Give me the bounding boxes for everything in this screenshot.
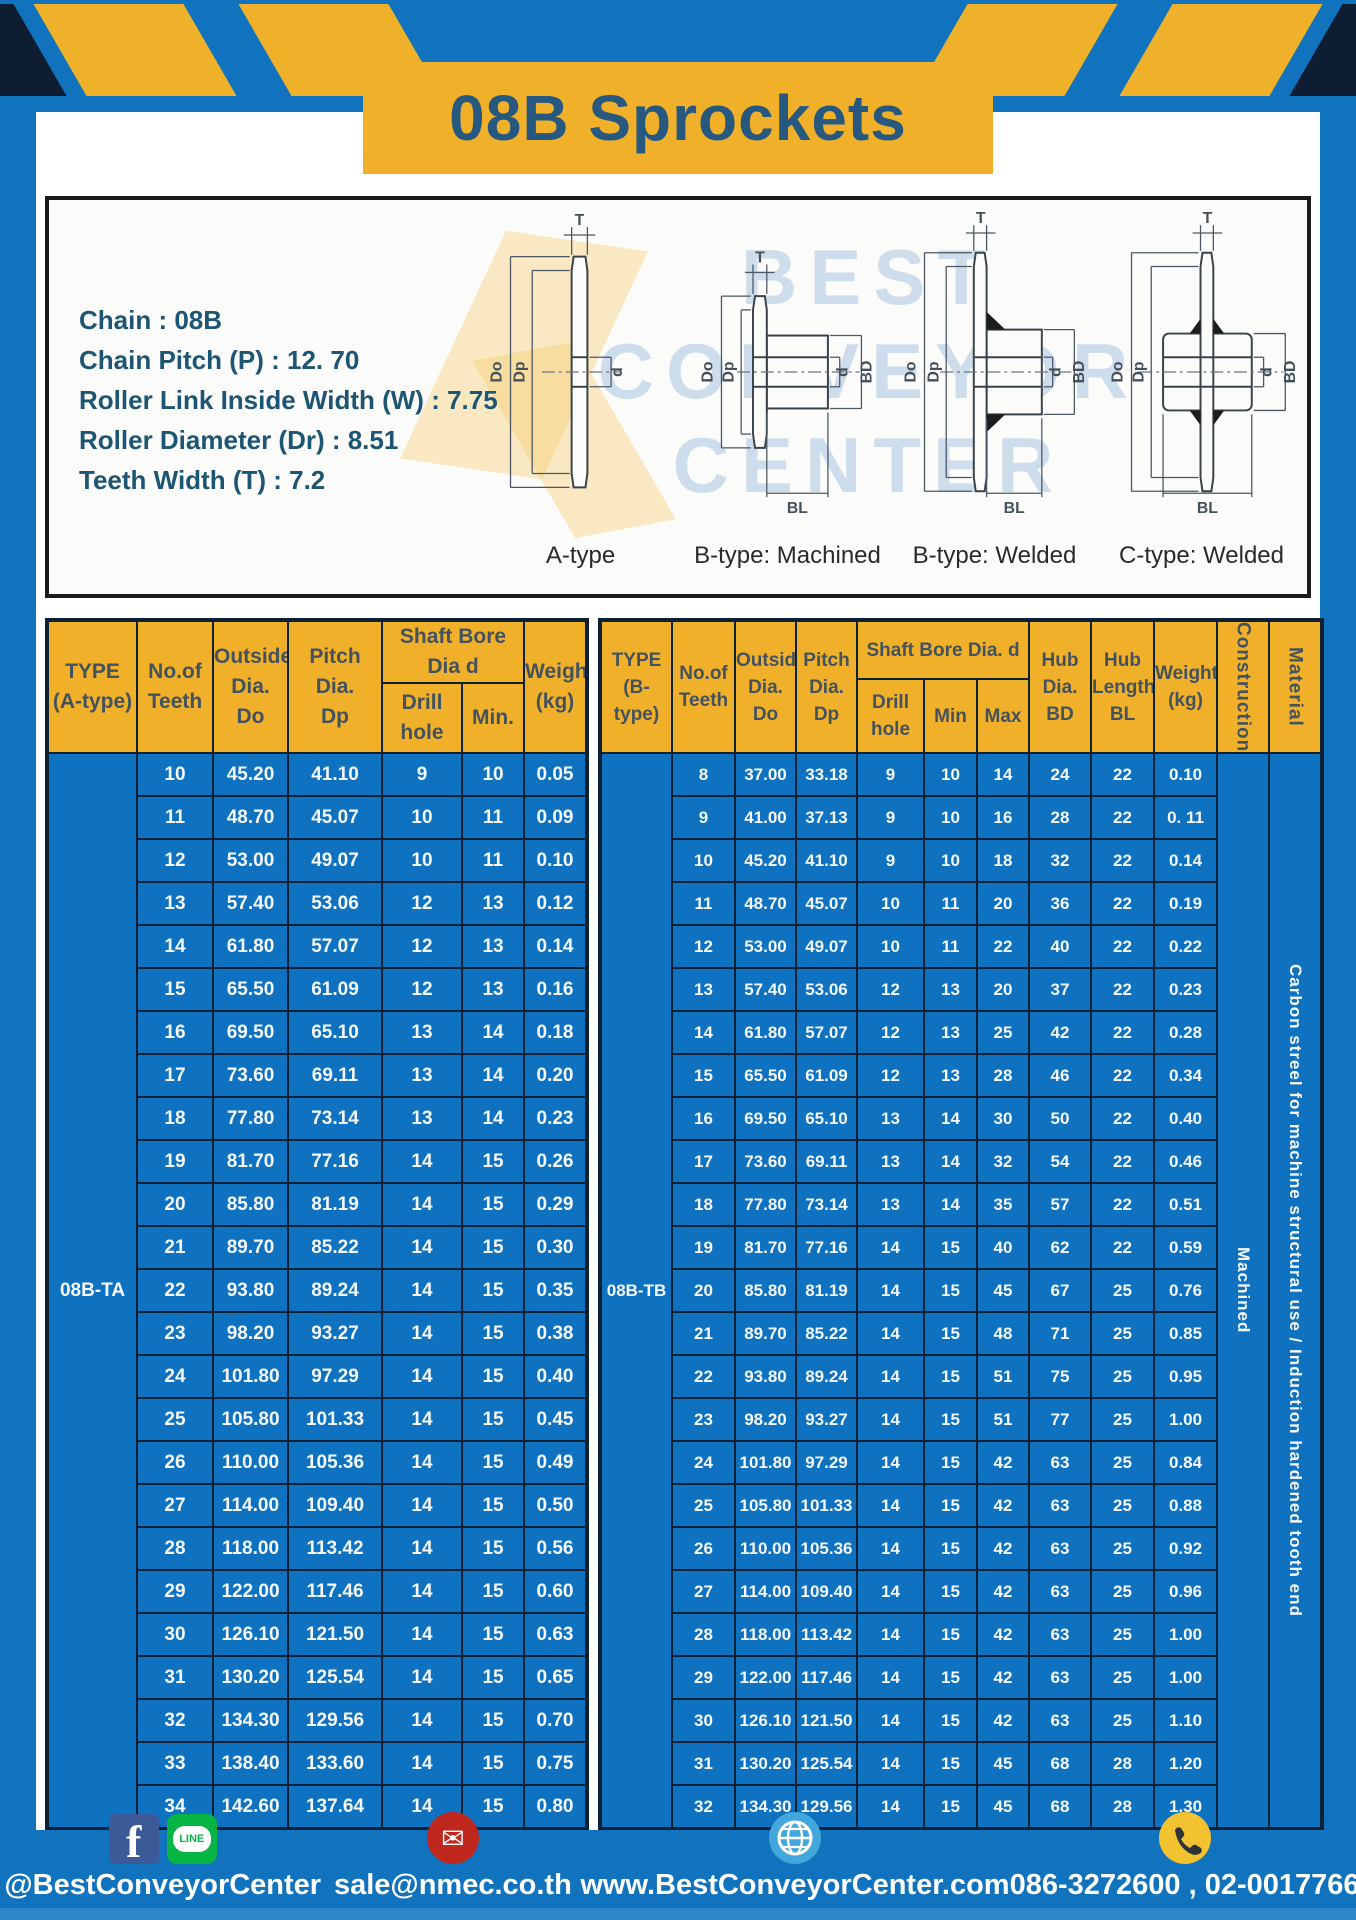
diagram-c-type-welded: T Do Dp: [1098, 206, 1305, 594]
cell: 14: [857, 1527, 924, 1570]
cell: 73.14: [288, 1097, 382, 1140]
envelope-glyph: ✉: [441, 1822, 464, 1855]
cell: 14: [137, 925, 213, 968]
hdr-line: Do: [214, 702, 287, 732]
cell: 117.46: [796, 1656, 857, 1699]
cell: 69.50: [213, 1011, 288, 1054]
cell: 13: [924, 1011, 977, 1054]
table-a-type: TYPE (A-type) No.of Teeth Outside Dia. D…: [45, 618, 589, 1831]
cell: 14: [382, 1699, 462, 1742]
data-row: 08B-TB837.0033.189101424220.10MachinedCa…: [600, 753, 1322, 796]
diagram-caption: B-type: Welded: [913, 542, 1077, 570]
cell: 29: [137, 1570, 213, 1613]
cell: 12: [382, 882, 462, 925]
svg-text:Dp: Dp: [720, 361, 737, 382]
cell: 15: [924, 1355, 977, 1398]
cell: 14: [382, 1398, 462, 1441]
cell: 37.13: [796, 796, 857, 839]
cell: 69.50: [735, 1097, 796, 1140]
cell: 113.42: [288, 1527, 382, 1570]
cell: 15: [462, 1699, 524, 1742]
cell: 42: [977, 1656, 1029, 1699]
cell: 69.11: [288, 1054, 382, 1097]
cell: 41.10: [288, 753, 382, 796]
facebook-letter: f: [126, 1820, 141, 1864]
page-title: 08B Sprockets: [449, 81, 907, 155]
cell: 81.19: [288, 1183, 382, 1226]
cell: 0.10: [524, 839, 587, 882]
cell: 22: [1091, 882, 1154, 925]
svg-text:BL: BL: [1197, 500, 1218, 517]
chain-specs: Chain : 08B Chain Pitch (P) : 12. 70 Rol…: [79, 300, 498, 500]
svg-text:Do: Do: [700, 361, 717, 382]
catalog-page: { "title": "08B Sprockets", "specs": { "…: [0, 0, 1356, 1920]
diagram-caption: A-type: [546, 542, 615, 570]
globe-icon[interactable]: [769, 1812, 821, 1864]
hdr-line: No.of: [138, 657, 212, 687]
cell: 14: [857, 1699, 924, 1742]
cell: 14: [382, 1656, 462, 1699]
cell: 15: [924, 1226, 977, 1269]
cell: 12: [382, 925, 462, 968]
cell: 48.70: [213, 796, 288, 839]
cell: 15: [137, 968, 213, 1011]
cell: 13: [924, 1054, 977, 1097]
email-address[interactable]: sale@nmec.co.th: [334, 1869, 572, 1902]
cell: 13: [382, 1011, 462, 1054]
cell: 13: [382, 1054, 462, 1097]
cell: 26: [672, 1527, 735, 1570]
footer-row: f LINE @BestConveyorCenter ✉ sale@nmec.c…: [0, 1830, 1356, 1908]
cell: 0.40: [1154, 1097, 1217, 1140]
cell: 17: [672, 1140, 735, 1183]
cell: 37: [1029, 968, 1091, 1011]
footer-bottom-strip: [0, 1908, 1356, 1920]
cell: 14: [462, 1011, 524, 1054]
svg-text:Do: Do: [489, 361, 506, 382]
col-shaft-bore: Shaft Bore Dia d: [382, 620, 524, 683]
cell: 15: [924, 1742, 977, 1785]
svg-text:d: d: [835, 367, 852, 377]
cell: 13: [462, 925, 524, 968]
hdr-line: Weight: [525, 657, 585, 687]
cell: 40: [977, 1226, 1029, 1269]
cell: 0.46: [1154, 1140, 1217, 1183]
cell: 15: [462, 1656, 524, 1699]
cell: 63: [1029, 1613, 1091, 1656]
cell: 45.20: [735, 839, 796, 882]
hdr-line: Hub: [1030, 647, 1090, 674]
cell: 57: [1029, 1183, 1091, 1226]
cell: 105.80: [735, 1484, 796, 1527]
cell: 14: [382, 1484, 462, 1527]
hdr-line: Outside: [214, 642, 287, 672]
hdr-line: Dia.: [736, 674, 795, 701]
cell: 10: [382, 839, 462, 882]
phone-icon[interactable]: [1159, 1812, 1211, 1864]
data-row: 1253.0049.0710112240220.22: [600, 925, 1322, 968]
cell: 53.06: [796, 968, 857, 1011]
cell: 57.07: [288, 925, 382, 968]
cell: 126.10: [213, 1613, 288, 1656]
cell: 89.70: [213, 1226, 288, 1269]
cell: 97.29: [288, 1355, 382, 1398]
cell: 13: [857, 1183, 924, 1226]
cell: 21: [672, 1312, 735, 1355]
cell: 15: [462, 1183, 524, 1226]
cell: 12: [857, 968, 924, 1011]
cell: 61.09: [288, 968, 382, 1011]
cell: 57.07: [796, 1011, 857, 1054]
hdr-line: BD: [1030, 701, 1090, 728]
cell: 0.14: [1154, 839, 1217, 882]
cell: 12: [857, 1011, 924, 1054]
cell: 71: [1029, 1312, 1091, 1355]
cell: 32: [137, 1699, 213, 1742]
cell: 97.29: [796, 1441, 857, 1484]
line-label: LINE: [179, 1833, 204, 1845]
col-material: Material: [1269, 620, 1322, 753]
cell: 12: [137, 839, 213, 882]
cell: 63: [1029, 1656, 1091, 1699]
cell: 15: [924, 1398, 977, 1441]
cell: 8: [672, 753, 735, 796]
cell: 61.80: [213, 925, 288, 968]
cell: 10: [137, 753, 213, 796]
cell: 77.16: [796, 1226, 857, 1269]
cell: 13: [137, 882, 213, 925]
cell: 42: [977, 1441, 1029, 1484]
cell: 0.10: [1154, 753, 1217, 796]
cell: 15: [924, 1269, 977, 1312]
cell: 14: [857, 1613, 924, 1656]
line-icon[interactable]: LINE: [167, 1814, 217, 1864]
b-type-welded-drawing: T Do Dp: [891, 206, 1098, 538]
cell: 0.26: [524, 1140, 587, 1183]
cell: 121.50: [288, 1613, 382, 1656]
hdr-line: Do: [736, 701, 795, 728]
cell: 13: [924, 968, 977, 1011]
data-row: 25105.80101.3314154263250.88: [600, 1484, 1322, 1527]
cell: 22: [1091, 1097, 1154, 1140]
spec-line: Chain Pitch (P) : 12. 70: [79, 340, 498, 380]
cell: 25: [1091, 1484, 1154, 1527]
cell: 14: [672, 1011, 735, 1054]
cell: 30: [137, 1613, 213, 1656]
cell: 130.20: [213, 1656, 288, 1699]
cell: 63: [1029, 1484, 1091, 1527]
cell: 68: [1029, 1742, 1091, 1785]
cell: 26: [137, 1441, 213, 1484]
cell: 11: [924, 925, 977, 968]
cell: 20: [672, 1269, 735, 1312]
cell: 28: [977, 1054, 1029, 1097]
cell: 122.00: [213, 1570, 288, 1613]
col-teeth: No.of Teeth: [137, 620, 213, 753]
cell: 45: [977, 1742, 1029, 1785]
cell: 14: [382, 1742, 462, 1785]
cell: 63: [1029, 1570, 1091, 1613]
cell: 57.40: [213, 882, 288, 925]
data-row: 1981.7077.1614154062220.59: [600, 1226, 1322, 1269]
cell: 54: [1029, 1140, 1091, 1183]
type-label: 08B-TB: [600, 753, 672, 1829]
material-value: Carbon streel for machine structural use…: [1269, 753, 1322, 1829]
col-max: Max: [977, 679, 1029, 753]
svg-text:BL: BL: [787, 500, 808, 517]
cell: 81.19: [796, 1269, 857, 1312]
cell: 23: [672, 1398, 735, 1441]
cell: 61.09: [796, 1054, 857, 1097]
data-row: 1461.8057.0712132542220.28: [600, 1011, 1322, 1054]
cell: 15: [462, 1484, 524, 1527]
cell: 63: [1029, 1441, 1091, 1484]
cell: 14: [857, 1441, 924, 1484]
cell: 65.50: [213, 968, 288, 1011]
cell: 53.00: [735, 925, 796, 968]
cell: 63: [1029, 1527, 1091, 1570]
table-b-body: 08B-TB837.0033.189101424220.10MachinedCa…: [600, 753, 1322, 1829]
cell: 0.12: [524, 882, 587, 925]
cell: 9: [857, 796, 924, 839]
cell: 15: [462, 1441, 524, 1484]
cell: 27: [672, 1570, 735, 1613]
col-min: Min: [924, 679, 977, 753]
cell: 93.80: [213, 1269, 288, 1312]
cell: 0.85: [1154, 1312, 1217, 1355]
cell: 15: [924, 1656, 977, 1699]
col-outside-dia: Outside Dia. Do: [735, 620, 796, 753]
table-b-type: TYPE (B-type) No.of Teeth Outside Dia. D…: [598, 618, 1324, 1831]
cell: 53.00: [213, 839, 288, 882]
cell: 22: [1091, 968, 1154, 1011]
cell: 1.20: [1154, 1742, 1217, 1785]
cell: 0.34: [1154, 1054, 1217, 1097]
data-row: 2293.8089.2414155175250.95: [600, 1355, 1322, 1398]
cell: 0.19: [1154, 882, 1217, 925]
spec-line: Chain : 08B: [79, 300, 498, 340]
cell: 49.07: [288, 839, 382, 882]
cell: 11: [462, 796, 524, 839]
cell: 126.10: [735, 1699, 796, 1742]
cell: 11: [137, 796, 213, 839]
svg-text:BD: BD: [858, 361, 875, 384]
cell: 81.70: [213, 1140, 288, 1183]
svg-text:d: d: [609, 367, 626, 377]
cell: 73.14: [796, 1183, 857, 1226]
cell: 14: [382, 1613, 462, 1656]
cell: 28: [1029, 796, 1091, 839]
cell: 42: [977, 1613, 1029, 1656]
cell: 0.63: [524, 1613, 587, 1656]
cell: 105.80: [213, 1398, 288, 1441]
cell: 22: [1091, 1226, 1154, 1269]
cell: 65.10: [288, 1011, 382, 1054]
cell: 73.60: [213, 1054, 288, 1097]
cell: 25: [1091, 1269, 1154, 1312]
cell: 14: [857, 1355, 924, 1398]
hdr-line: Hub: [1092, 647, 1153, 674]
phone-numbers[interactable]: 086-3272600 , 02-0017766: [1010, 1869, 1356, 1902]
svg-text:T: T: [1203, 210, 1213, 227]
cell: 16: [137, 1011, 213, 1054]
cell: 13: [462, 968, 524, 1011]
hdr-line: (A-type): [49, 687, 136, 717]
website-url[interactable]: www.BestConveyorCenter.com: [580, 1869, 1009, 1902]
cell: 138.40: [213, 1742, 288, 1785]
cell: 12: [857, 1054, 924, 1097]
cell: 14: [382, 1312, 462, 1355]
cell: 14: [382, 1183, 462, 1226]
cell: 0.20: [524, 1054, 587, 1097]
svg-text:BL: BL: [1004, 500, 1025, 517]
cell: 98.20: [735, 1398, 796, 1441]
cell: 77: [1029, 1398, 1091, 1441]
diagram-box: BEST CONVEYOR CENTER Chain : 08B Chain P…: [45, 196, 1311, 598]
col-hub-dia: Hub Dia. BD: [1029, 620, 1091, 753]
cell: 15: [462, 1312, 524, 1355]
cell: 19: [137, 1140, 213, 1183]
diagram-a-type: T Do Dp d A-type: [477, 206, 684, 594]
cell: 63: [1029, 1699, 1091, 1742]
cell: 0.40: [524, 1355, 587, 1398]
cell: 14: [857, 1742, 924, 1785]
cell: 1.00: [1154, 1613, 1217, 1656]
facebook-icon[interactable]: f: [109, 1814, 159, 1864]
cell: 22: [1091, 925, 1154, 968]
cell: 73.60: [735, 1140, 796, 1183]
cell: 19: [672, 1226, 735, 1269]
cell: 20: [137, 1183, 213, 1226]
cell: 10: [857, 925, 924, 968]
cell: 15: [462, 1226, 524, 1269]
cell: 0.96: [1154, 1570, 1217, 1613]
cell: 41.00: [735, 796, 796, 839]
cell: 15: [462, 1527, 524, 1570]
table-b-header: TYPE (B-type) No.of Teeth Outside Dia. D…: [600, 620, 1322, 753]
cell: 42: [977, 1484, 1029, 1527]
cell: 14: [924, 1183, 977, 1226]
cell: 0.05: [524, 753, 587, 796]
cell: 121.50: [796, 1699, 857, 1742]
col-teeth: No.of Teeth: [672, 620, 735, 753]
cell: 15: [462, 1355, 524, 1398]
footer-bar: f LINE @BestConveyorCenter ✉ sale@nmec.c…: [0, 1830, 1356, 1920]
cell: 0.09: [524, 796, 587, 839]
footer-social: f LINE @BestConveyorCenter: [0, 1814, 325, 1908]
cell: 10: [462, 753, 524, 796]
cell: 15: [462, 1269, 524, 1312]
cell: 69.11: [796, 1140, 857, 1183]
cell: 32: [1029, 839, 1091, 882]
cell: 22: [1091, 753, 1154, 796]
cell: 14: [462, 1097, 524, 1140]
cell: 14: [462, 1054, 524, 1097]
spec-line: Teeth Width (T) : 7.2: [79, 460, 498, 500]
cell: 105.36: [288, 1441, 382, 1484]
hdr-line: Teeth: [138, 687, 212, 717]
hdr-line: TYPE: [49, 657, 136, 687]
cell: 15: [462, 1140, 524, 1183]
cell: 20: [977, 882, 1029, 925]
diagram-b-type-welded: T Do Dp: [891, 206, 1098, 594]
data-row: 2398.2093.2714155177251.00: [600, 1398, 1322, 1441]
cell: 14: [382, 1355, 462, 1398]
cell: 0. 11: [1154, 796, 1217, 839]
cell: 25: [1091, 1527, 1154, 1570]
mail-icon[interactable]: ✉: [427, 1812, 479, 1864]
cell: 15: [924, 1441, 977, 1484]
cell: 25: [137, 1398, 213, 1441]
cell: 9: [857, 753, 924, 796]
cell: 25: [1091, 1656, 1154, 1699]
cell: 0.50: [524, 1484, 587, 1527]
svg-text:BD: BD: [1071, 361, 1088, 384]
data-row: 24101.8097.2914154263250.84: [600, 1441, 1322, 1484]
cell: 25: [1091, 1398, 1154, 1441]
spec-line: Roller Link Inside Width (W) : 7.75: [79, 380, 498, 420]
cell: 32: [977, 1140, 1029, 1183]
cell: 105.36: [796, 1527, 857, 1570]
cell: 65.10: [796, 1097, 857, 1140]
cell: 22: [977, 925, 1029, 968]
svg-text:Dp: Dp: [925, 361, 942, 382]
cell: 15: [672, 1054, 735, 1097]
cell: 22: [1091, 839, 1154, 882]
diagram-caption: C-type: Welded: [1119, 542, 1284, 570]
cell: 0.76: [1154, 1269, 1217, 1312]
cell: 25: [672, 1484, 735, 1527]
cell: 122.00: [735, 1656, 796, 1699]
hdr-line: No.of: [673, 660, 734, 687]
cell: 25: [977, 1011, 1029, 1054]
cell: 85.80: [735, 1269, 796, 1312]
cell: 113.42: [796, 1613, 857, 1656]
cell: 14: [382, 1527, 462, 1570]
cell: 85.80: [213, 1183, 288, 1226]
hdr-line: Pitch: [797, 647, 856, 674]
cell: 25: [1091, 1355, 1154, 1398]
cell: 10: [857, 882, 924, 925]
cell: 0.88: [1154, 1484, 1217, 1527]
cell: 0.23: [524, 1097, 587, 1140]
cell: 25: [1091, 1570, 1154, 1613]
col-weight: Weight (kg): [524, 620, 587, 753]
hazard-stripe: [1119, 4, 1322, 96]
data-row: 941.0037.139101628220. 11: [600, 796, 1322, 839]
b-type-machined-drawing: T Do Dp: [684, 206, 891, 538]
cell: 0.65: [524, 1656, 587, 1699]
cell: 14: [382, 1269, 462, 1312]
svg-text:d: d: [1258, 367, 1275, 377]
cell: 18: [977, 839, 1029, 882]
sprocket-diagrams: T Do Dp d A-type: [477, 206, 1305, 594]
cell: 22: [1091, 1011, 1154, 1054]
cell: 134.30: [213, 1699, 288, 1742]
cell: 23: [137, 1312, 213, 1355]
cell: 14: [382, 1140, 462, 1183]
cell: 93.80: [735, 1355, 796, 1398]
cell: 0.35: [524, 1269, 587, 1312]
data-row: 27114.00109.4014154263250.96: [600, 1570, 1322, 1613]
cell: 65.50: [735, 1054, 796, 1097]
hdr-line: Length: [1092, 674, 1153, 701]
cell: 0.95: [1154, 1355, 1217, 1398]
data-row: 08B-TA1045.2041.109100.05: [47, 753, 587, 796]
cell: 41.10: [796, 839, 857, 882]
data-row: 1148.7045.0710112036220.19: [600, 882, 1322, 925]
cell: 125.54: [796, 1742, 857, 1785]
